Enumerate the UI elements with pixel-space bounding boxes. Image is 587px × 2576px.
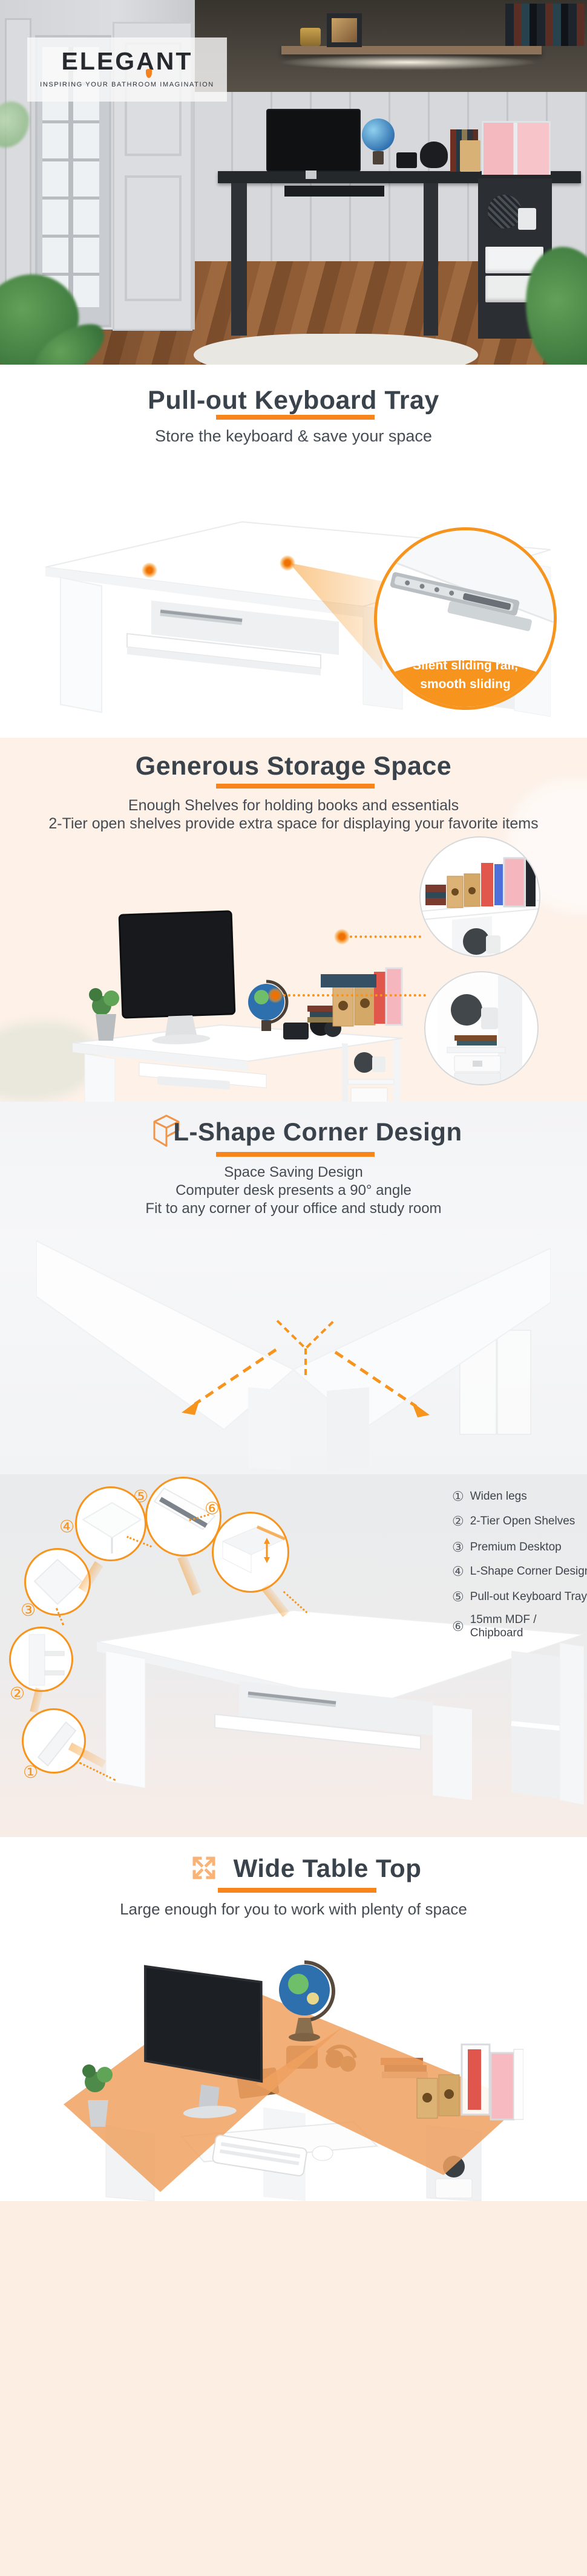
corner-title: L-Shape Corner Design [0, 1117, 587, 1147]
feature-list-item-2: ② 2-Tier Open Shelves [452, 1514, 587, 1529]
feature-num-3: ③ [452, 1540, 464, 1555]
hero-ornament [300, 28, 321, 46]
hero-desk-leg [424, 183, 438, 336]
hero-desk-left-panel [231, 183, 247, 336]
brand-logo-text: ELEGANT [27, 47, 227, 76]
keyboard-rail-dot-right [280, 555, 295, 571]
storage-divider [216, 784, 375, 789]
feature-circle-5-num: ⑤ [133, 1486, 148, 1506]
storage-line2: 2-Tier open shelves provide extra space … [0, 815, 587, 833]
brand-logo-box: ELEGANT INSPIRING YOUR BATHROOM IMAGINAT… [27, 37, 227, 102]
footer-band [0, 2201, 587, 2576]
hero-wall-shelf [281, 46, 542, 54]
hero-shelf-cup [518, 208, 536, 230]
feature-circle-2 [9, 1627, 73, 1692]
storage-line1: Enough Shelves for holding books and ess… [0, 797, 587, 815]
feature-circle-6 [212, 1512, 289, 1593]
hero-rug [194, 334, 478, 365]
hero-shelf-mesh [488, 195, 522, 229]
storage-dot-top [334, 929, 350, 945]
wide-top-title: Wide Table Top [0, 1854, 587, 1883]
storage-dotline-top [350, 935, 421, 938]
feature-circle-2-num: ② [10, 1683, 25, 1703]
callout-line1: Silent sliding rail, [377, 656, 554, 675]
feature-label-4: L-Shape Corner Design [470, 1565, 587, 1578]
hero-wood-box [460, 140, 480, 172]
feature-list-item-6: ⑥ 15mm MDF / Chipboard [452, 1613, 587, 1640]
wide-top-divider [218, 1888, 376, 1893]
feature-list-item-4: ④ L-Shape Corner Design [452, 1564, 587, 1579]
feature-num-5: ⑤ [452, 1589, 464, 1605]
feature-num-4: ④ [452, 1564, 464, 1579]
hero-photo-frame-inner [332, 18, 357, 42]
corner-line3: Fit to any corner of your office and stu… [0, 1200, 587, 1217]
storage-detail-circle-top [419, 836, 540, 957]
keyboard-tray-zoom-circle: Silent sliding rail, smooth sliding [374, 527, 557, 710]
keyboard-tray-callout-text: Silent sliding rail, smooth sliding [377, 656, 554, 694]
hero-globe-base [373, 151, 384, 164]
storage-detail-circle-bottom [424, 971, 539, 1085]
hero-monitor [266, 109, 361, 172]
feature-circle-4-num: ④ [59, 1517, 74, 1537]
feature-label-5: Pull-out Keyboard Tray [470, 1590, 587, 1604]
feature-label-2: 2-Tier Open Shelves [470, 1515, 576, 1528]
feature-circle-1-num: ① [23, 1762, 38, 1782]
feature-list-item-5: ⑤ Pull-out Keyboard Tray [452, 1589, 587, 1605]
feature-num-6: ⑥ [452, 1619, 464, 1634]
feature-num-1: ① [452, 1489, 464, 1504]
feature-label-1: Widen legs [470, 1490, 527, 1503]
feature-list-item-1: ① Widen legs [452, 1489, 587, 1504]
feature-list-item-3: ③ Premium Desktop [452, 1540, 587, 1555]
corner-illustration [36, 1229, 551, 1471]
hero-shelf-books [505, 4, 584, 46]
hero-pink-files [482, 121, 551, 175]
corner-line2: Computer desk presents a 90° angle [0, 1182, 587, 1199]
hero-globe [362, 119, 395, 151]
keyboard-tray-title: Pull-out Keyboard Tray [0, 386, 587, 415]
wide-top-subtitle: Large enough for you to work with plenty… [0, 1900, 587, 1919]
keyboard-tray-subtitle: Store the keyboard & save your space [0, 427, 587, 446]
feature-circle-3-num: ③ [21, 1600, 36, 1620]
hero-headphones [420, 141, 448, 168]
brand-logo-droplet-icon [146, 69, 152, 78]
callout-line2: smooth sliding [377, 675, 554, 694]
keyboard-tray-divider [216, 415, 375, 420]
wide-top-illustration [64, 1926, 523, 2201]
feature-label-3: Premium Desktop [470, 1541, 562, 1554]
hero-monitor-stand [306, 171, 316, 179]
hero-door-panel-inset2 [125, 175, 182, 301]
storage-title: Generous Storage Space [0, 752, 587, 781]
hero-desk-tray [284, 186, 384, 197]
brand-tagline: INSPIRING YOUR BATHROOM IMAGINATION [27, 81, 227, 88]
storage-dotline-bottom [283, 994, 426, 997]
feature-num-2: ② [452, 1514, 464, 1529]
corner-line1: Space Saving Design [0, 1164, 587, 1181]
product-detail-page: ELEGANT INSPIRING YOUR BATHROOM IMAGINAT… [0, 0, 587, 2576]
hero-shelf-glow [278, 54, 539, 70]
storage-dot-bottom [267, 987, 283, 1003]
hero-clock [396, 152, 417, 168]
corner-divider [216, 1152, 375, 1157]
keyboard-rail-dot-left [142, 562, 157, 578]
feature-label-6: 15mm MDF / Chipboard [470, 1613, 587, 1640]
storage-desk-illustration [67, 844, 405, 1119]
hero-photo: ELEGANT INSPIRING YOUR BATHROOM IMAGINAT… [0, 0, 587, 365]
